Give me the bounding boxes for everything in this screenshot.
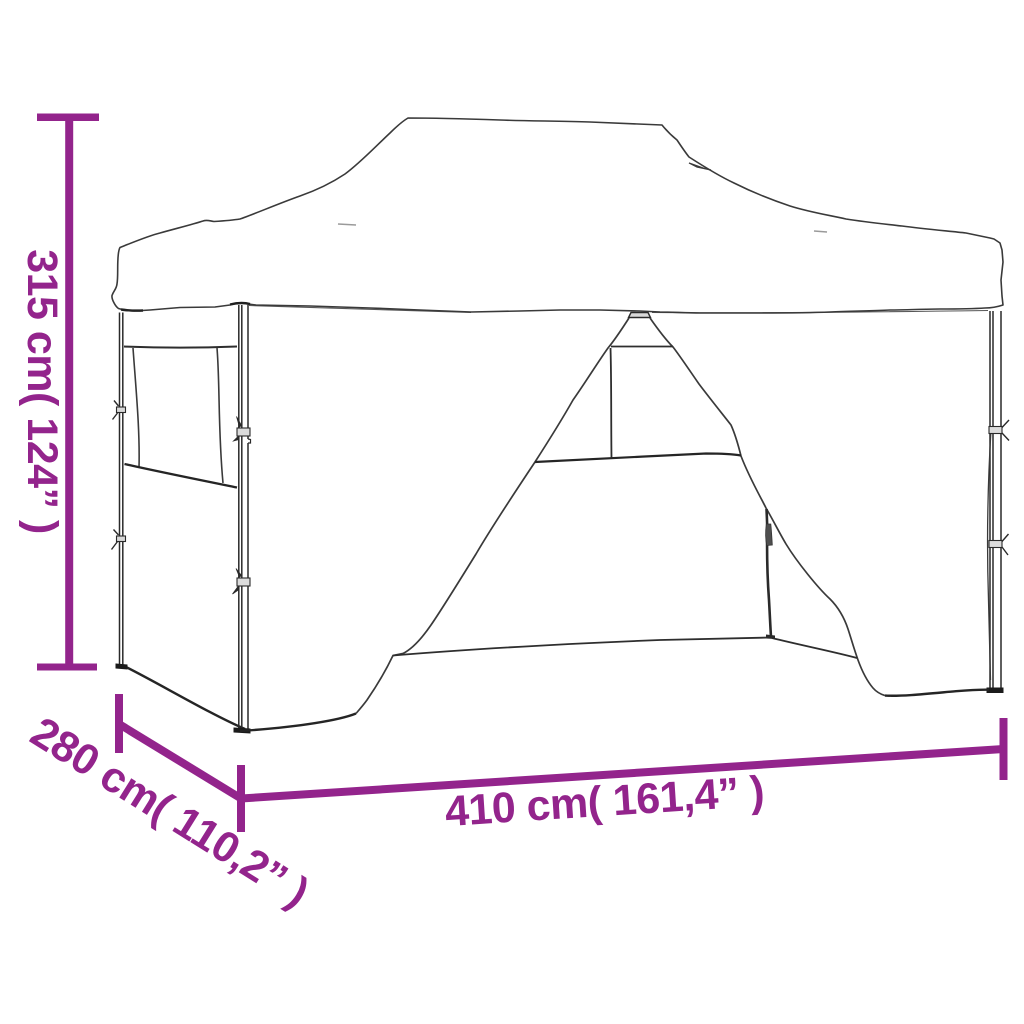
svg-text:315 cm( 124” ): 315 cm( 124” ) bbox=[18, 249, 66, 534]
